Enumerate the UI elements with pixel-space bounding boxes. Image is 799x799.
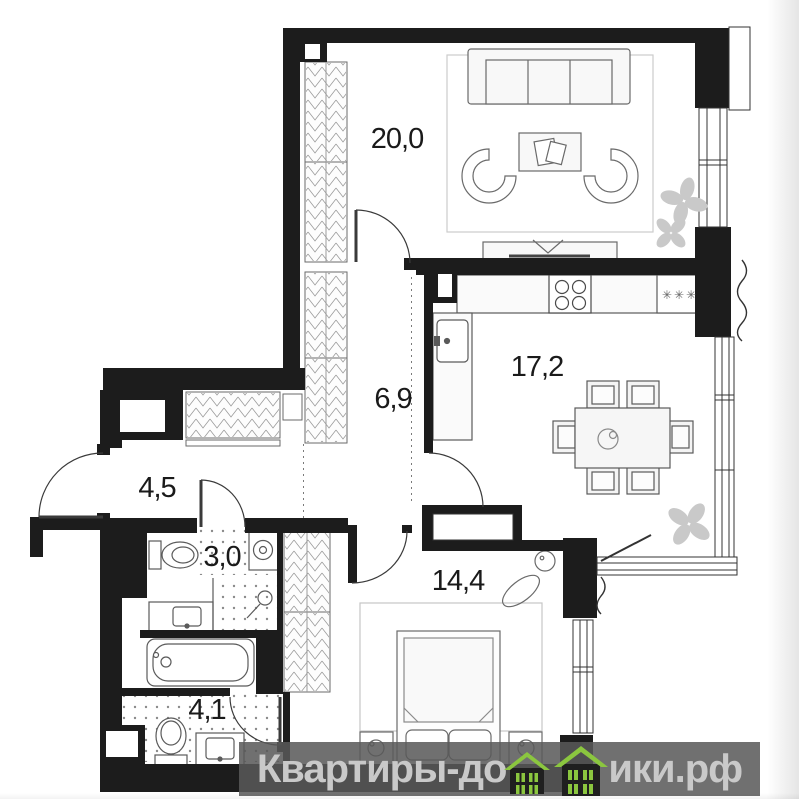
- room-label-corridor: 4,5: [138, 472, 175, 504]
- watermark-text-left: Квартиры-до: [257, 749, 507, 789]
- dining-table-icon: [575, 408, 670, 468]
- room-label-kitchen: 17,2: [511, 351, 563, 383]
- room-label-wc: 3,0: [203, 541, 240, 573]
- floor-plan-drawing: ✳✳✳ 20,0 17,2 6,9 4,5 3,0 14,4 4,1: [0, 0, 799, 799]
- vanity-sink-icon: [196, 733, 244, 766]
- houses-logo-icon: [504, 746, 608, 798]
- room-label-bedroom: 14,4: [432, 565, 485, 597]
- kitchen-window: [715, 337, 734, 557]
- room-label-living: 20,0: [371, 123, 423, 155]
- vanity-sink-icon: [149, 602, 213, 631]
- room-label-hallway: 6,9: [374, 383, 411, 415]
- fridge-symbol: ✳✳✳: [662, 288, 698, 302]
- sofa-icon: [468, 49, 630, 104]
- kitchen-sink-icon: [434, 320, 468, 362]
- bathtub-icon: [147, 639, 254, 686]
- bedroom-window: [573, 620, 593, 733]
- room-label-bathroom: 4,1: [188, 694, 225, 726]
- toilet-icon: [149, 541, 198, 569]
- floor-plan-page: ✳✳✳ 20,0 17,2 6,9 4,5 3,0 14,4 4,1 Кварт…: [0, 0, 799, 799]
- toilet-icon: [155, 718, 187, 765]
- watermark-banner: Квартиры-до ики.рф: [239, 742, 760, 796]
- exterior-pillar: [729, 27, 750, 110]
- coffee-table-icon: [519, 133, 581, 171]
- washing-machine-icon: [249, 531, 278, 570]
- watermark-text-right: ики.рф: [608, 749, 742, 789]
- stove-icon: [549, 275, 591, 313]
